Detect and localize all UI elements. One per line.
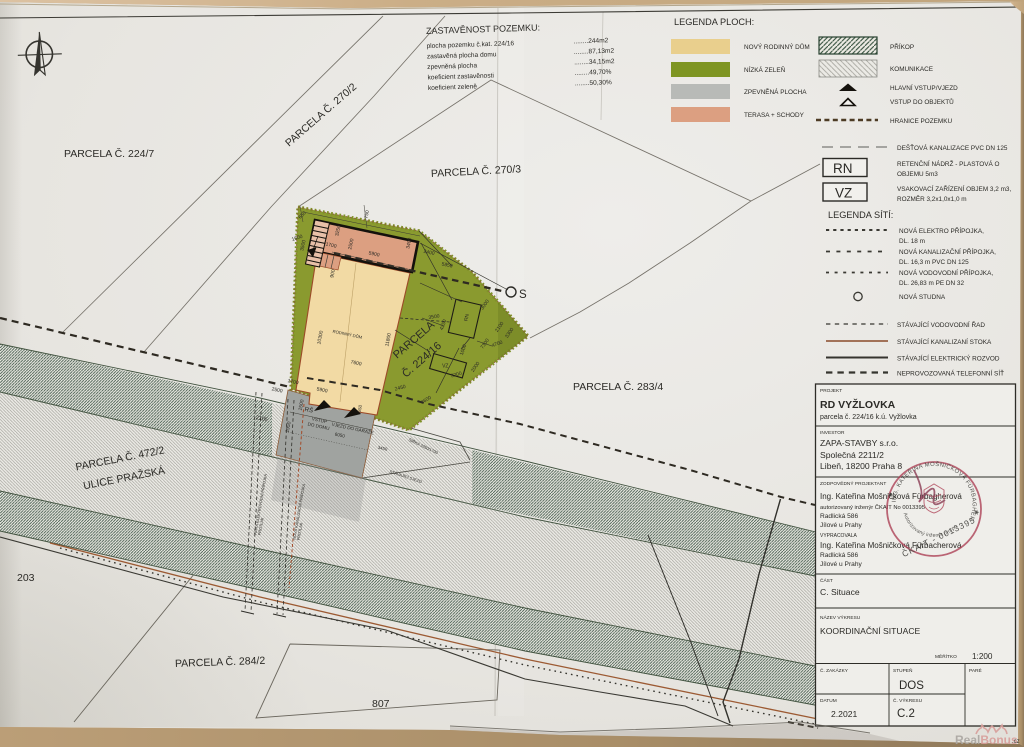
- svg-text:........244m2: ........244m2: [573, 37, 608, 45]
- svg-text:VZ: VZ: [442, 363, 448, 369]
- svg-text:PARCELA Č. 224/7: PARCELA Č. 224/7: [64, 147, 154, 160]
- svg-text:LEGENDA SÍTÍ:: LEGENDA SÍTÍ:: [828, 210, 893, 220]
- svg-text:DOS: DOS: [899, 680, 924, 692]
- svg-text:PARCELA Č. 283/4: PARCELA Č. 283/4: [573, 380, 663, 393]
- svg-text:VYPRACOVALA: VYPRACOVALA: [820, 533, 858, 539]
- svg-text:LEGENDA PLOCH:: LEGENDA PLOCH:: [674, 17, 754, 27]
- svg-text:VSTUP DO OBJEKTŮ: VSTUP DO OBJEKTŮ: [890, 97, 954, 106]
- svg-text:ZPEVNĚNÁ PLOCHA: ZPEVNĚNÁ PLOCHA: [744, 87, 807, 96]
- svg-text:STÁVAJÍCÍ ELEKTRICKÝ ROZVOD: STÁVAJÍCÍ ELEKTRICKÝ ROZVOD: [897, 354, 1000, 363]
- svg-text:Jílové u Prahy: Jílové u Prahy: [820, 522, 862, 529]
- svg-text:OBJEMU 5m3: OBJEMU 5m3: [897, 171, 938, 178]
- svg-text:ZAPA-STAVBY s.r.o.: ZAPA-STAVBY s.r.o.: [820, 438, 898, 448]
- svg-text:INVESTOR: INVESTOR: [820, 430, 845, 436]
- svg-text:........34,15m2: ........34,15m2: [574, 58, 615, 66]
- svg-text:VZ: VZ: [835, 186, 852, 201]
- svg-text:DL. 16,3 m PVC DN 125: DL. 16,3 m PVC DN 125: [899, 259, 969, 266]
- svg-text:DATUM: DATUM: [820, 698, 837, 704]
- svg-text:C.2: C.2: [897, 708, 915, 720]
- svg-text:NEPROVOZOVANÁ TELEFONNÍ SÍŤ: NEPROVOZOVANÁ TELEFONNÍ SÍŤ: [897, 369, 1004, 378]
- svg-text:NOVÁ ELEKTRO PŘÍPOJKA,: NOVÁ ELEKTRO PŘÍPOJKA,: [899, 226, 984, 235]
- svg-text:PŘÍKOP: PŘÍKOP: [890, 42, 914, 51]
- svg-text:NÍZKÁ ZELEŇ: NÍZKÁ ZELEŇ: [744, 65, 786, 74]
- svg-text:ROZMĚR 3,2x1,0x1,0 m: ROZMĚR 3,2x1,0x1,0 m: [897, 194, 967, 203]
- svg-text:Ing. Kateřina Mošničková Fürba: Ing. Kateřina Mošničková Fürbacherová: [820, 541, 962, 550]
- svg-text:NOVÝ RODINNÝ DŮM: NOVÝ RODINNÝ DŮM: [744, 42, 810, 51]
- svg-text:NOVÁ KANALIZAČNÍ PŘÍPOJKA,: NOVÁ KANALIZAČNÍ PŘÍPOJKA,: [899, 247, 996, 256]
- svg-text:NÁZEV VÝKRESU: NÁZEV VÝKRESU: [820, 614, 861, 621]
- svg-text:Radlická 586: Radlická 586: [820, 552, 858, 559]
- svg-text:RD VYŽLOVKA: RD VYŽLOVKA: [820, 398, 896, 411]
- svg-text:NOVÁ STUDNA: NOVÁ STUDNA: [899, 292, 946, 301]
- svg-text:TERASA + SCHODY: TERASA + SCHODY: [744, 112, 805, 119]
- svg-text:NOVÁ VODOVODNÍ PŘÍPOJKA,: NOVÁ VODOVODNÍ PŘÍPOJKA,: [899, 268, 993, 277]
- svg-text:2.2021: 2.2021: [831, 709, 858, 719]
- svg-text:ČÁST: ČÁST: [820, 577, 833, 584]
- svg-text:Jílové u Prahy: Jílové u Prahy: [820, 561, 862, 568]
- svg-text:Libeň, 18200 Praha 8: Libeň, 18200 Praha 8: [820, 461, 902, 471]
- svg-text:RN: RN: [833, 161, 853, 176]
- svg-text:RETENČNÍ NÁDRŽ - PLASTOVÁ O: RETENČNÍ NÁDRŽ - PLASTOVÁ O: [897, 159, 1000, 168]
- svg-text:parcela č. 224/16 k.ú. Vyžlovk: parcela č. 224/16 k.ú. Vyžlovka: [820, 414, 917, 421]
- svg-text:........49,70%: ........49,70%: [574, 69, 611, 77]
- svg-text:STÁVAJÍCÍ VODOVODNÍ ŘAD: STÁVAJÍCÍ VODOVODNÍ ŘAD: [897, 320, 985, 329]
- svg-text:DEŠŤOVÁ KANALIZACE PVC DN 125: DEŠŤOVÁ KANALIZACE PVC DN 125: [897, 143, 1008, 152]
- svg-text:autorizovaný inženýr ČKAIT No: autorizovaný inženýr ČKAIT No 0013395: [820, 504, 925, 511]
- svg-text:Č. ZAKÁZKY: Č. ZAKÁZKY: [820, 667, 849, 674]
- svg-text:S: S: [519, 289, 527, 301]
- svg-text:203: 203: [17, 572, 35, 584]
- svg-text:PARÉ: PARÉ: [969, 667, 982, 674]
- svg-text:STÁVAJÍCÍ KANALIZANÍ STOKA: STÁVAJÍCÍ KANALIZANÍ STOKA: [897, 337, 992, 346]
- svg-text:Radlická 586: Radlická 586: [820, 513, 858, 520]
- svg-text:DL. 26,83 m PE DN 32: DL. 26,83 m PE DN 32: [899, 280, 964, 287]
- svg-text:DL. 18 m: DL. 18 m: [899, 238, 925, 245]
- svg-text:1:200: 1:200: [972, 652, 993, 661]
- svg-text:........50,30%: ........50,30%: [575, 79, 612, 87]
- svg-text:........87,13m2: ........87,13m2: [574, 48, 615, 56]
- svg-text:HRANICE POZEMKU: HRANICE POZEMKU: [890, 118, 953, 125]
- svg-text:807: 807: [372, 698, 390, 710]
- svg-text:STUPEŇ: STUPEŇ: [893, 667, 913, 674]
- svg-text:VSAKOVACÍ ZAŘÍZENÍ OBJEM 3,2 m: VSAKOVACÍ ZAŘÍZENÍ OBJEM 3,2 m3,: [897, 184, 1011, 193]
- svg-text:.cz: .cz: [1012, 739, 1020, 745]
- svg-text:PROJEKT: PROJEKT: [820, 388, 842, 394]
- svg-text:KOMUNIKACE: KOMUNIKACE: [890, 66, 933, 73]
- svg-text:RealBonus: RealBonus: [955, 733, 1018, 747]
- svg-text:Č. VÝKRESU: Č. VÝKRESU: [893, 697, 923, 704]
- svg-text:KOORDINAČNÍ SITUACE: KOORDINAČNÍ SITUACE: [820, 626, 921, 636]
- svg-text:Společná 2211/2: Společná 2211/2: [820, 450, 884, 460]
- svg-text:C. Situace: C. Situace: [820, 587, 860, 597]
- svg-text:HLAVNÍ VSTUP/VJEZD: HLAVNÍ VSTUP/VJEZD: [890, 83, 958, 92]
